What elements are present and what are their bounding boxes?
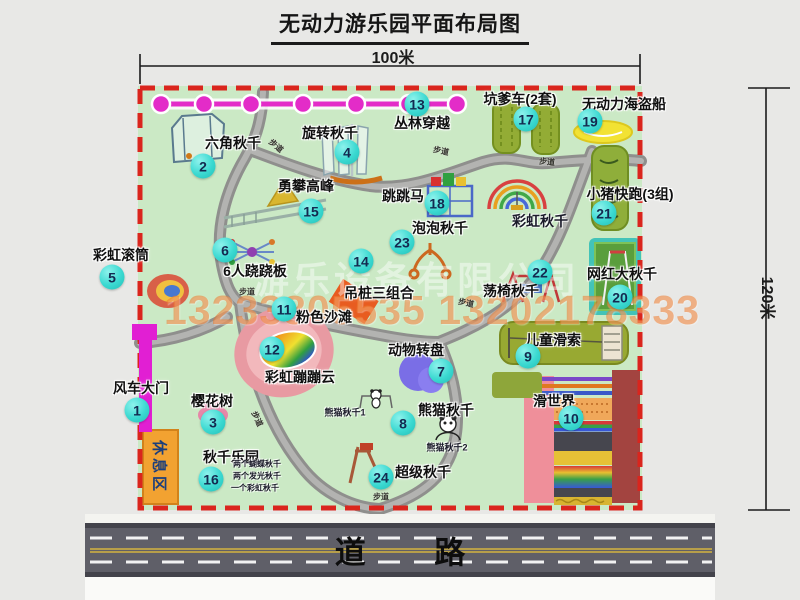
- sub-label-1: 熊猫秋千1: [324, 406, 365, 419]
- marker-21: 21: [592, 201, 617, 226]
- marker-24: 24: [369, 465, 394, 490]
- attraction-label-12: 彩虹蹦蹦云: [265, 367, 335, 387]
- park-layout-poster: { "title": "无动力游乐园平面布局图", "dimensions": …: [0, 0, 800, 600]
- marker-7: 7: [429, 359, 454, 384]
- marker-17: 17: [514, 107, 539, 132]
- attraction-label-17: 坑爹车(2套): [483, 89, 556, 109]
- marker-3: 3: [201, 410, 226, 435]
- attraction-label-6: 6人跷跷板: [223, 261, 287, 281]
- walkway-label-6: 步道: [373, 492, 389, 503]
- marker-19: 19: [578, 109, 603, 134]
- attraction-label-24: 超级秋千: [395, 462, 451, 482]
- walkway-label-1: 步道: [432, 144, 450, 158]
- marker-14: 14: [349, 249, 374, 274]
- attraction-label-8: 熊猫秋千: [418, 400, 474, 420]
- walkway-label-4: 步道: [457, 296, 475, 310]
- attraction-label-18: 跳跳马: [382, 186, 424, 206]
- marker-8: 8: [391, 411, 416, 436]
- walkway-label-5: 步道: [249, 409, 266, 428]
- marker-1: 1: [125, 398, 150, 423]
- attraction-label-2: 六角秋千: [205, 133, 261, 153]
- marker-9: 9: [516, 344, 541, 369]
- marker-2: 2: [191, 154, 216, 179]
- marker-10: 10: [559, 406, 584, 431]
- marker-5: 5: [100, 265, 125, 290]
- attraction-label-15: 勇攀高峰: [278, 176, 334, 196]
- attraction-label-22: 荡椅秋千: [483, 281, 539, 301]
- marker-22: 22: [528, 260, 553, 285]
- page-title: 无动力游乐园平面布局图: [271, 8, 529, 45]
- marker-18: 18: [425, 191, 450, 216]
- attraction-label-13: 丛林穿越: [394, 113, 450, 133]
- marker-23: 23: [390, 230, 415, 255]
- walkway-label-2: 步道: [539, 156, 556, 168]
- attraction-label-23: 泡泡秋千: [412, 218, 468, 238]
- sub-label-0: 彩虹秋千: [512, 211, 568, 231]
- walkway-label-0: 步道: [266, 137, 285, 156]
- labels-layer: 风车大门1六角秋千2樱花树3旋转秋千4彩虹滚筒56人跷跷板6动物转盘7熊猫秋千8…: [0, 0, 800, 600]
- dimension-height-label: 120米: [757, 277, 781, 320]
- sub-label-2: 熊猫秋千2: [426, 441, 467, 454]
- walkway-label-3: 步道: [239, 287, 255, 298]
- attraction-label-20: 网红大秋千: [587, 264, 657, 284]
- marker-16: 16: [199, 467, 224, 492]
- marker-6: 6: [213, 238, 238, 263]
- marker-13: 13: [405, 92, 430, 117]
- marker-15: 15: [299, 199, 324, 224]
- sub-label-3: 两个蝴蝶秋千: [233, 459, 281, 470]
- attraction-label-5: 彩虹滚筒: [93, 245, 149, 265]
- marker-20: 20: [608, 285, 633, 310]
- marker-11: 11: [272, 297, 297, 322]
- sub-label-5: 一个彩虹秋千: [231, 483, 279, 494]
- attraction-label-1: 风车大门: [113, 378, 169, 398]
- attraction-label-11: 粉色沙滩: [296, 307, 352, 327]
- attraction-label-7: 动物转盘: [388, 340, 444, 360]
- attraction-label-14: 吊桩三组合: [344, 283, 414, 303]
- sub-label-4: 两个发光秋千: [233, 471, 281, 482]
- attraction-label-3: 樱花树: [191, 391, 233, 411]
- dimension-width-label: 100米: [372, 44, 415, 68]
- marker-4: 4: [335, 140, 360, 165]
- marker-12: 12: [260, 337, 285, 362]
